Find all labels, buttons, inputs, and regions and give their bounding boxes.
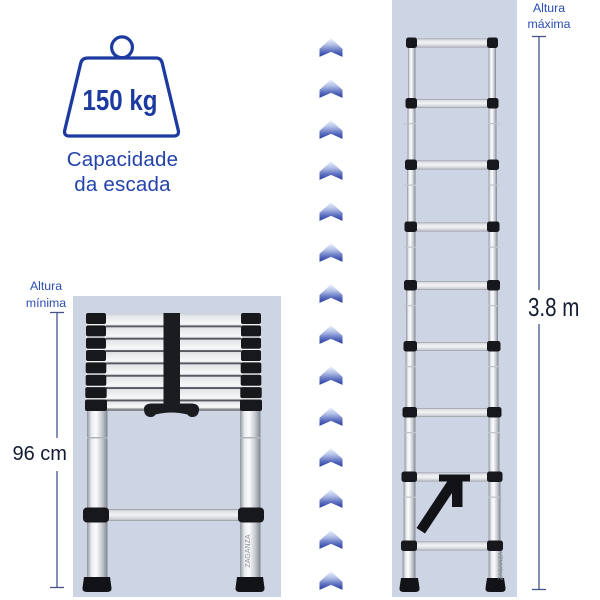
svg-text:150 kg: 150 kg <box>83 85 158 117</box>
svg-text:ZAGANZA: ZAGANZA <box>499 552 505 580</box>
svg-text:ZAGANZA: ZAGANZA <box>245 534 252 567</box>
